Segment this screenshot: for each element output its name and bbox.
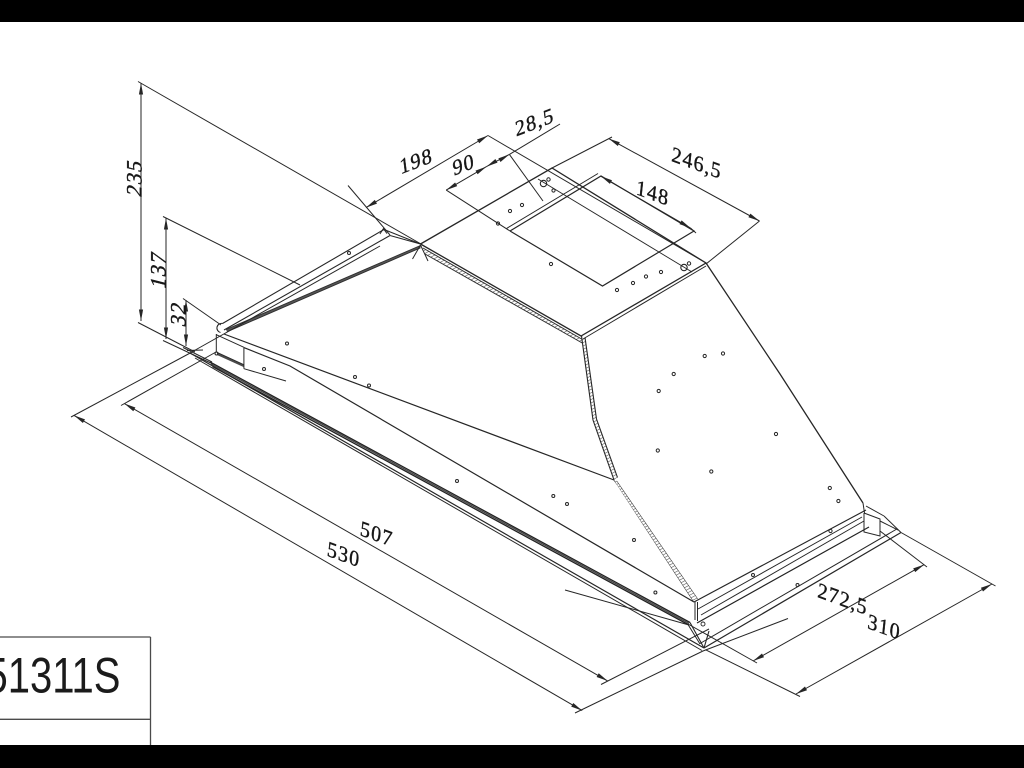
svg-text:198: 198 [398,143,434,180]
svg-text:530: 530 [326,536,362,572]
svg-text:246,5: 246,5 [670,142,723,184]
svg-text:51311S: 51311S [0,647,120,703]
svg-text:310: 310 [866,609,902,645]
svg-text:235: 235 [122,156,147,199]
svg-text:90: 90 [451,148,476,181]
svg-text:507: 507 [359,516,395,552]
svg-text:32: 32 [166,298,191,329]
svg-text:272,5: 272,5 [816,578,869,620]
svg-text:28,5: 28,5 [514,102,556,141]
svg-text:137: 137 [146,248,171,291]
